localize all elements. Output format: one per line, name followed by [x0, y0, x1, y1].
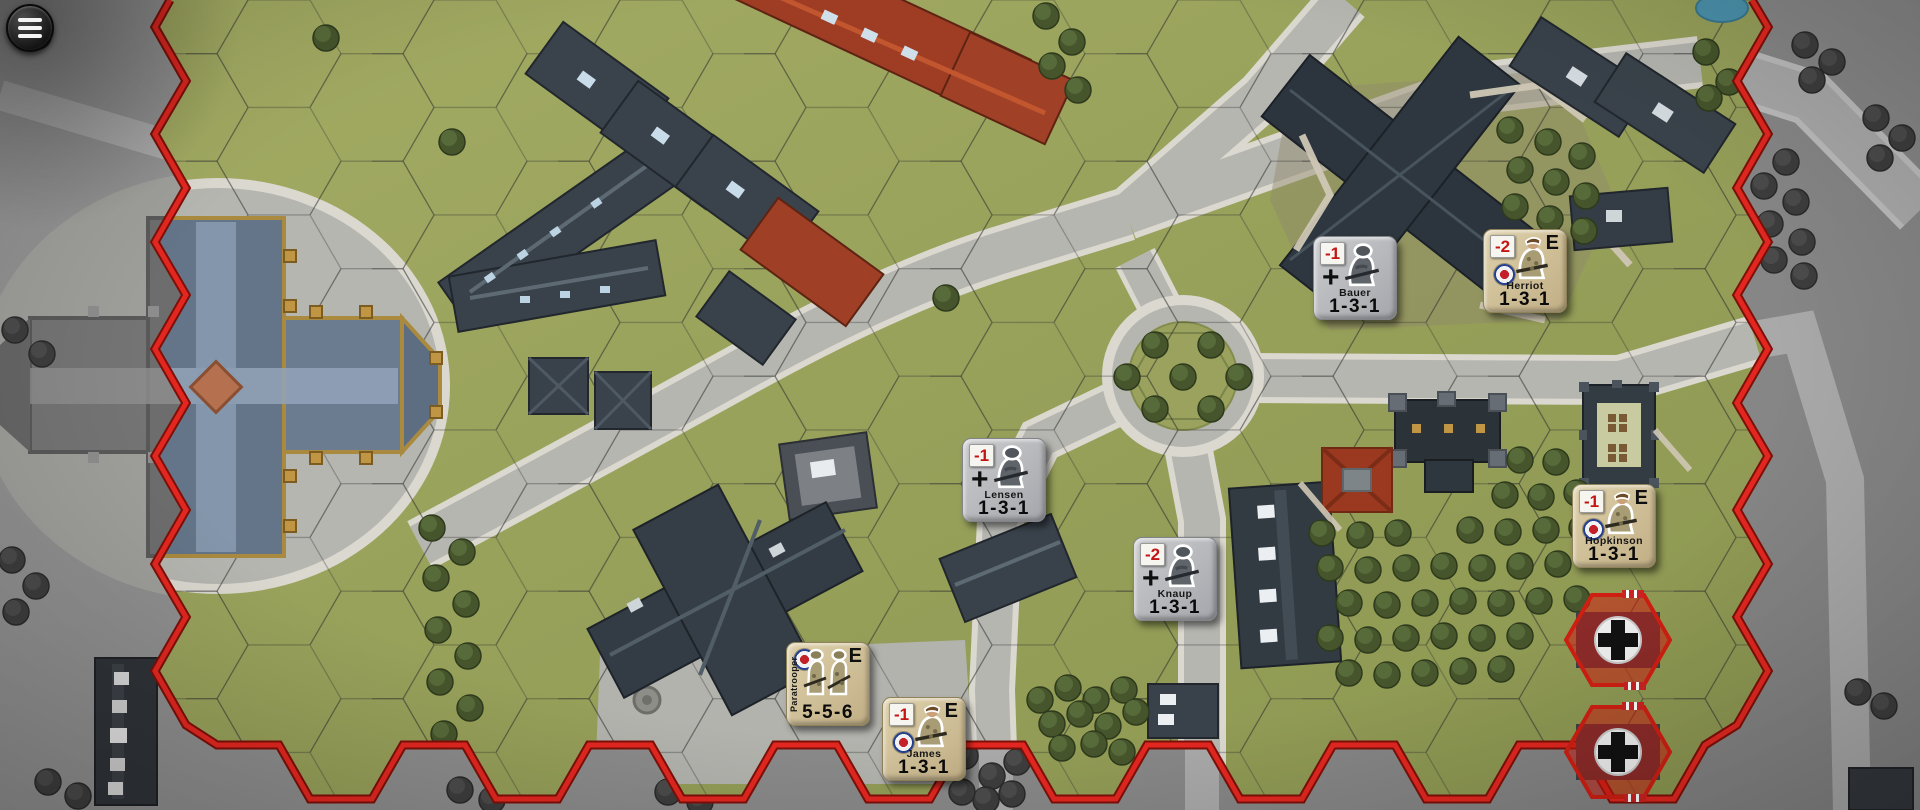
- unit-counter-knaup[interactable]: -2+Knaup1-3-1: [1133, 537, 1217, 621]
- objective-german-2[interactable]: [1562, 696, 1674, 808]
- objective-german-1[interactable]: [1562, 584, 1674, 696]
- hamburger-icon: [18, 18, 42, 22]
- unit-counter-bauer[interactable]: -1+Bauer1-3-1: [1313, 236, 1397, 320]
- unit-counter-lensen[interactable]: -1+Lensen1-3-1: [962, 438, 1046, 522]
- soldier-figure-icon: [800, 646, 854, 698]
- soldier-figure-icon: [1338, 241, 1386, 289]
- unit-stats: 1-3-1: [1484, 289, 1566, 311]
- unit-counter-herriot[interactable]: -2EHerriot1-3-1: [1483, 229, 1567, 313]
- unit-stats: 1-3-1: [1573, 544, 1655, 566]
- unit-counter-hopkinson[interactable]: -1EHopkinson1-3-1: [1572, 484, 1656, 568]
- unit-counter-paratrooper[interactable]: EParatrooper5-5-6: [786, 642, 870, 726]
- gray-warehouse-building: [95, 658, 157, 805]
- soldier-figure-icon: [1597, 489, 1645, 537]
- game-stage: -1+Bauer1-3-1-2EHerriot1-3-1-1+Lensen1-3…: [0, 0, 1920, 810]
- courtyard-building: [1579, 380, 1659, 488]
- soldier-figure-icon: [1508, 234, 1556, 282]
- pond: [1696, 0, 1748, 22]
- soldier-figure-icon: [1158, 542, 1206, 590]
- unit-stats: 1-3-1: [1134, 597, 1216, 619]
- red-pavilion: [1322, 448, 1392, 512]
- soldier-figure-icon: [987, 443, 1035, 491]
- unit-stats: 1-3-1: [963, 498, 1045, 520]
- unit-stats: 1-3-1: [883, 757, 965, 779]
- unit-stats: 5-5-6: [787, 702, 869, 724]
- soldier-figure-icon: [907, 702, 955, 750]
- unit-stats: 1-3-1: [1314, 296, 1396, 318]
- unit-counter-james[interactable]: -1EJames1-3-1: [882, 697, 966, 781]
- menu-button[interactable]: [6, 4, 54, 52]
- gray-building-bottom-right: [1849, 768, 1913, 810]
